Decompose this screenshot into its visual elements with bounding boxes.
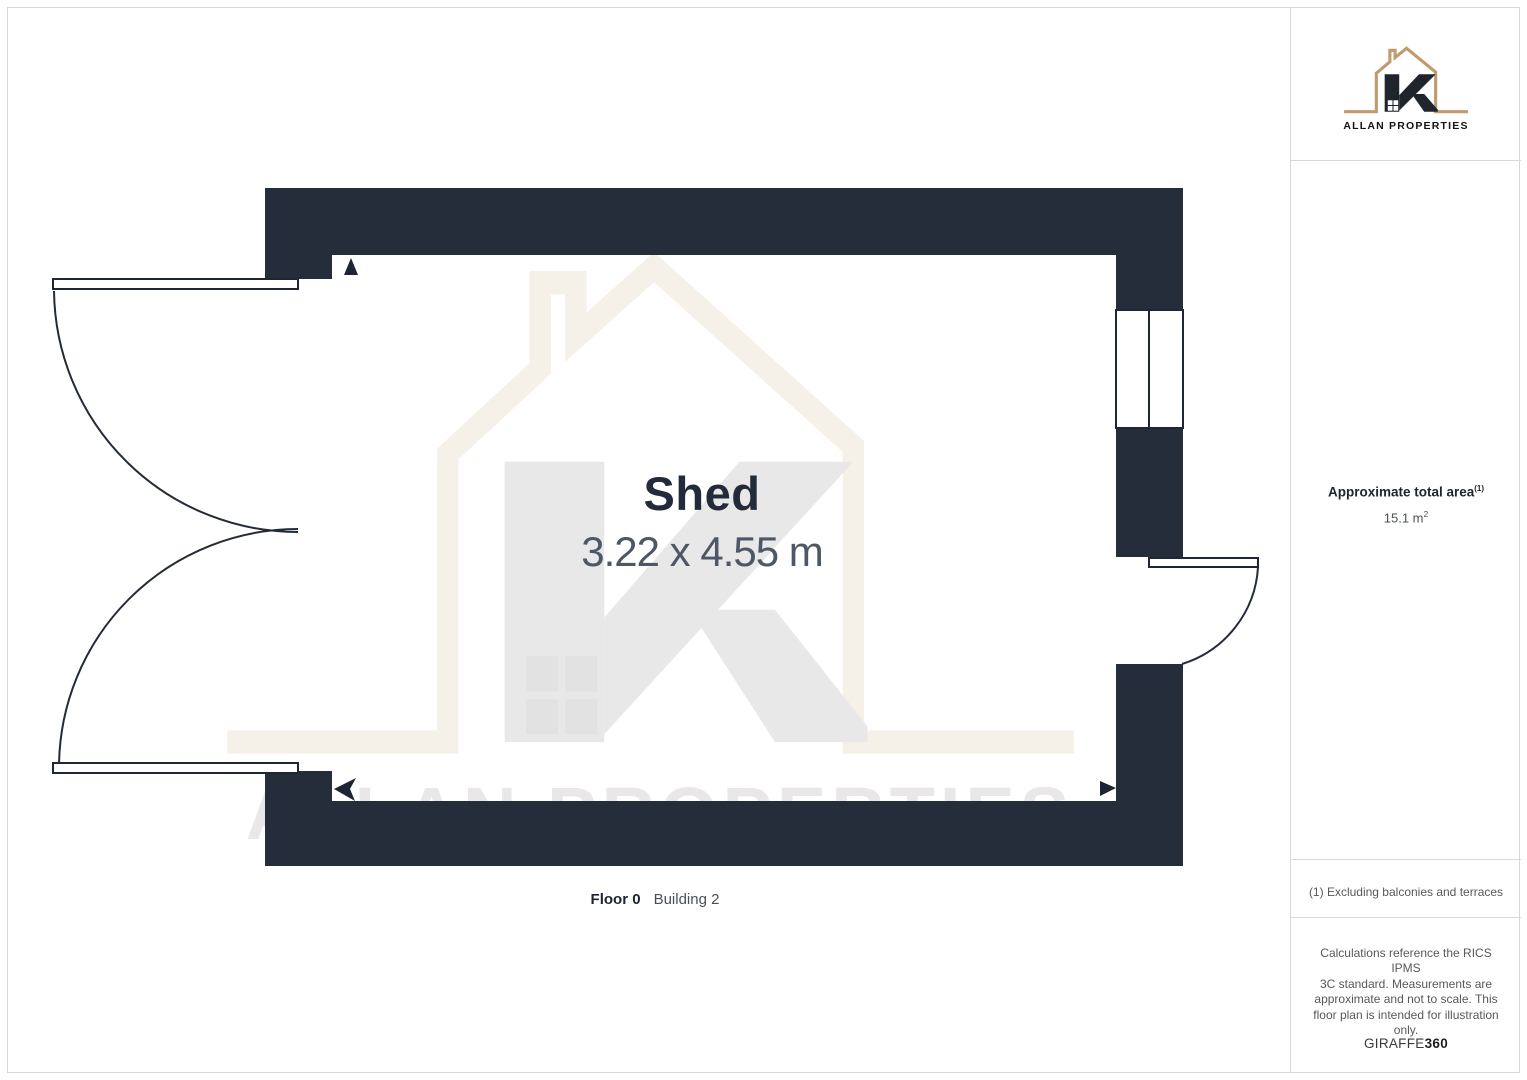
brand-logo-house-icon (1342, 44, 1470, 117)
door-right (1149, 558, 1258, 664)
sidebar-divider-2 (1291, 859, 1521, 860)
door-swing-arc-lower (59, 529, 298, 765)
disclaimer-text: Calculations reference the RICS IPMS 3C … (1309, 946, 1503, 1038)
total-area-value: 15.1 m2 (1291, 509, 1521, 525)
door-swing-arc-right (1182, 567, 1258, 664)
wall-top (265, 188, 1183, 255)
sidebar-divider-3 (1291, 917, 1521, 918)
sidebar-divider-1 (1291, 160, 1521, 161)
wall-right-above-window (1116, 255, 1183, 311)
brand-name: ALLAN PROPERTIES (1291, 120, 1521, 132)
brand-logo: ALLAN PROPERTIES (1291, 44, 1521, 132)
floorplan-page: ALLAN PROPERTIES (0, 0, 1527, 1080)
wall-left-upper-stub (265, 255, 332, 279)
door-leaf-lower (53, 763, 298, 773)
floor-number: Floor 0 (591, 891, 641, 908)
floorplan-area: ALLAN PROPERTIES (8, 8, 1290, 1072)
wall-bottom (265, 801, 1183, 866)
building-number: Building 2 (654, 891, 720, 908)
window-symbol (1116, 310, 1183, 428)
double-door-left (53, 279, 298, 773)
camera-marker-top-icon (344, 258, 358, 275)
room-name: Shed (581, 466, 822, 521)
camera-marker-bottomleft-icon (334, 778, 356, 801)
room-dimensions: 3.22 x 4.55 m (581, 528, 822, 576)
camera-marker-bottomright-icon (1100, 781, 1116, 796)
floor-caption: Floor 0Building 2 (591, 891, 720, 908)
wall-left-lower-stub (265, 771, 332, 801)
total-area-title: Approximate total area(1) (1291, 484, 1521, 500)
wall-right-between (1116, 428, 1183, 557)
info-sidebar: ALLAN PROPERTIES Approximate total area(… (1290, 8, 1521, 1072)
door-leaf-upper (53, 279, 298, 289)
giraffe360-credit: GIRAFFE360 (1291, 1036, 1521, 1051)
footnote-text: (1) Excluding balconies and terraces (1301, 885, 1511, 899)
brand-logo-k-icon (1385, 74, 1438, 111)
total-area-block: Approximate total area(1) 15.1 m2 (1291, 484, 1521, 525)
door-leaf-right (1149, 558, 1258, 567)
total-area-footnote-ref: (1) (1474, 484, 1484, 493)
wall-right-below-door (1116, 664, 1183, 801)
room-label: Shed 3.22 x 4.55 m (581, 466, 822, 576)
door-swing-arc-upper (54, 291, 298, 532)
